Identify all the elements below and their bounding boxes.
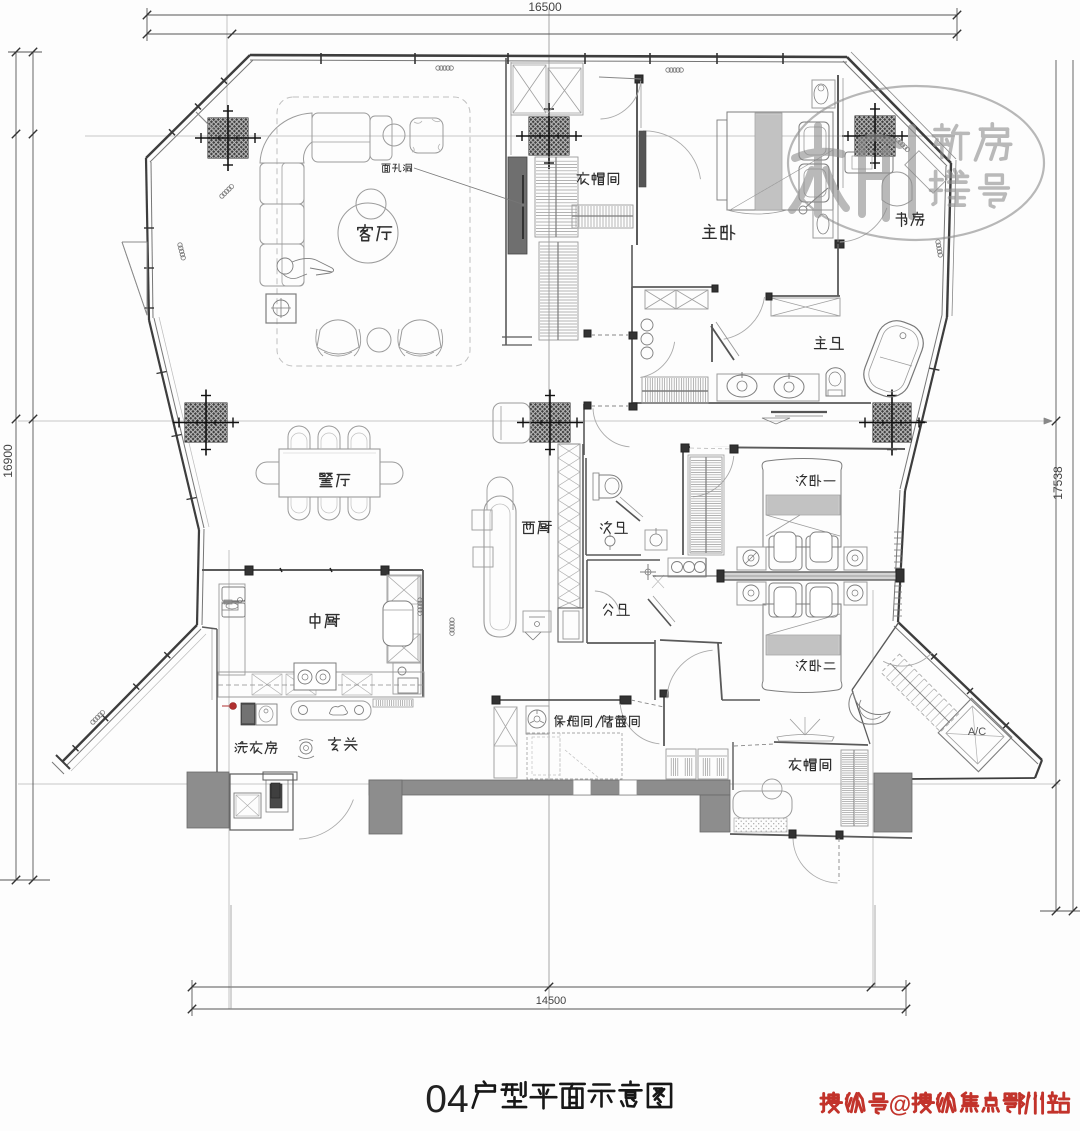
svg-text:04: 04 bbox=[425, 1078, 468, 1121]
svg-text:17538: 17538 bbox=[1051, 466, 1065, 500]
svg-text:16900: 16900 bbox=[1, 444, 15, 478]
svg-text:14500: 14500 bbox=[536, 995, 567, 1007]
svg-text:A/C: A/C bbox=[968, 726, 986, 738]
svg-text:16500: 16500 bbox=[528, 0, 562, 14]
svg-text:@: @ bbox=[889, 1091, 911, 1117]
